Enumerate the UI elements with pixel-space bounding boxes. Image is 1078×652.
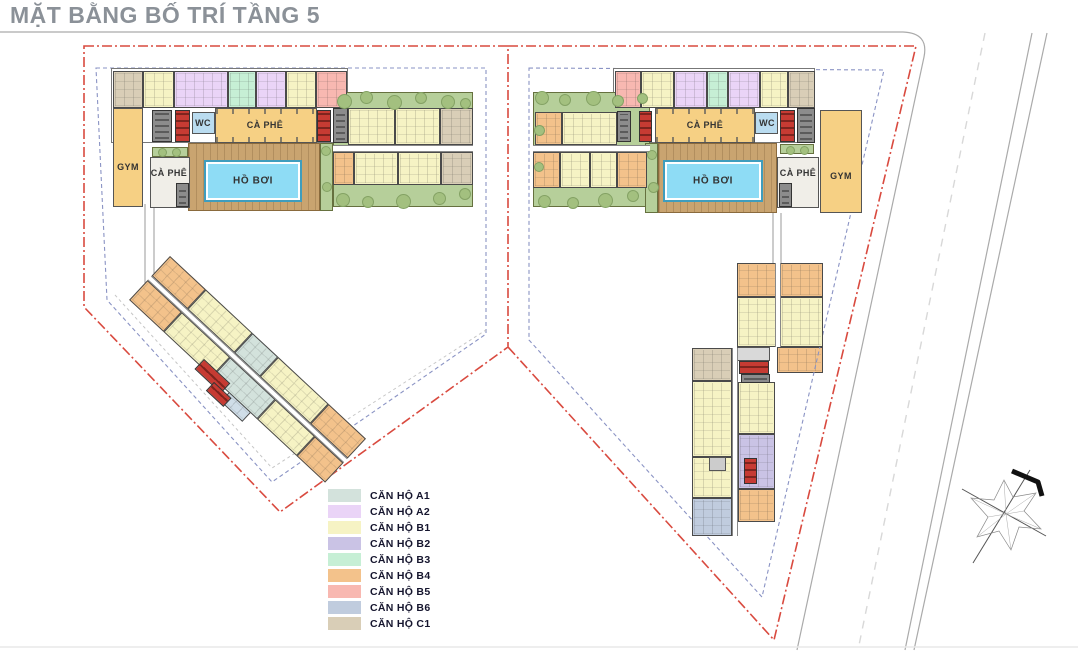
apartment-unit [780, 297, 823, 347]
tree-icon [387, 95, 402, 110]
legend-label: CĂN HỘ B3 [370, 554, 430, 566]
right-wing-lobby [737, 347, 770, 361]
elevator-core [333, 108, 348, 143]
tree-icon [336, 193, 350, 207]
legend-label: CĂN HỘ C1 [370, 618, 430, 630]
tree-icon [415, 92, 427, 104]
floorplan-canvas: MẶT BẰNG BỐ TRÍ TẦNG 5 [0, 0, 1078, 652]
apartment-unit [286, 71, 315, 108]
legend-swatch [328, 521, 361, 534]
apartment-unit [737, 263, 780, 297]
tree-icon [459, 188, 471, 200]
apartment-unit [590, 152, 617, 188]
road-centerline [858, 33, 985, 650]
legend-item: CĂN HỘ B4 [328, 569, 430, 582]
left-garden-bottom-row [333, 152, 473, 185]
apartment-unit [560, 152, 590, 188]
legend-label: CĂN HỘ B6 [370, 602, 430, 614]
legend: CĂN HỘ A1CĂN HỘ A2CĂN HỘ B1CĂN HỘ B2CĂN … [328, 489, 430, 633]
right-pool-label: HỒ BƠI [693, 176, 733, 187]
right-wc-label: WC [759, 118, 775, 128]
stair-core [744, 458, 757, 484]
legend-item: CĂN HỘ A1 [328, 489, 430, 502]
legend-swatch [328, 601, 361, 614]
tree-icon [559, 94, 571, 106]
left-cafe-inner-label: CÀ PHÊ [151, 168, 187, 178]
legend-item: CĂN HỘ A2 [328, 505, 430, 518]
tree-icon [158, 148, 167, 157]
legend-label: CĂN HỘ B1 [370, 522, 430, 534]
tree-icon [322, 182, 332, 192]
legend-swatch [328, 617, 361, 630]
tree-icon [360, 91, 373, 104]
tree-icon [172, 148, 181, 157]
right-garden-corridor [533, 145, 650, 152]
legend-label: CĂN HỘ B5 [370, 586, 430, 598]
tree-icon [433, 192, 446, 205]
tree-icon [535, 91, 549, 105]
right-gym-label: GYM [830, 171, 852, 181]
apartment-unit [441, 152, 473, 185]
tree-icon [534, 162, 544, 172]
elevator-core [741, 374, 770, 383]
elevator-core [617, 111, 631, 142]
legend-item: CĂN HỘ B3 [328, 553, 430, 566]
legend-swatch [328, 537, 361, 550]
elevator-core [797, 108, 815, 143]
right-garden-bottom-row [533, 152, 647, 188]
legend-item: CĂN HỘ B5 [328, 585, 430, 598]
apartment-unit [113, 71, 143, 108]
apartment-unit [333, 152, 354, 185]
stair-core [639, 111, 652, 142]
elevator-core [709, 457, 726, 471]
left-wc-label: WC [195, 118, 211, 128]
stair-core [780, 110, 795, 142]
tree-icon [598, 193, 613, 208]
apartment-unit [692, 348, 732, 381]
tree-icon [534, 125, 545, 136]
stair-core [317, 110, 331, 142]
left-top-unit-row [113, 71, 347, 108]
left-gym-label: GYM [117, 162, 139, 172]
elevator-core [152, 110, 172, 142]
apartment-unit [707, 71, 728, 108]
elevator-core [779, 183, 792, 207]
apartment-unit [143, 71, 173, 108]
apartment-unit [738, 382, 775, 434]
apartment-unit [737, 297, 780, 347]
apartment-unit [728, 71, 761, 108]
tree-icon [337, 94, 352, 109]
tree-icon [586, 91, 601, 106]
tree-icon [800, 146, 809, 155]
apartment-unit [617, 152, 647, 188]
apartment-unit [788, 71, 815, 108]
apartment-unit [354, 152, 398, 185]
apartment-unit [398, 152, 441, 185]
legend-swatch [328, 489, 361, 502]
apartment-unit [256, 71, 286, 108]
road-edge-2 [914, 33, 1047, 650]
tree-icon [321, 146, 331, 156]
tree-icon [538, 195, 551, 208]
right-cafe-inner-label: CÀ PHÊ [780, 168, 816, 178]
left-gym-room [113, 108, 143, 207]
right-wing-head-corridor [775, 263, 781, 347]
right-garden-top-row [535, 112, 617, 145]
right-cafe-main-label: CÀ PHÊ [687, 120, 723, 130]
legend-item: CĂN HỘ B6 [328, 601, 430, 614]
tree-icon [647, 150, 657, 160]
tree-icon [648, 182, 659, 193]
apartment-unit [738, 489, 775, 522]
legend-swatch [328, 569, 361, 582]
tree-icon [396, 194, 411, 209]
tree-icon [786, 146, 795, 155]
legend-label: CĂN HỘ B2 [370, 538, 430, 550]
right-wing-west-column [692, 348, 732, 536]
tree-icon [637, 93, 648, 104]
road-edge-1 [905, 33, 1032, 650]
right-wing-east-column [738, 382, 775, 522]
legend-item: CĂN HỘ B1 [328, 521, 430, 534]
legend-label: CĂN HỘ A2 [370, 506, 430, 518]
apartment-unit [562, 112, 617, 145]
apartment-unit [348, 108, 395, 145]
tree-icon [460, 98, 471, 109]
legend-swatch [328, 553, 361, 566]
apartment-unit [228, 71, 256, 108]
legend-label: CĂN HỘ A1 [370, 490, 430, 502]
legend-item: CĂN HỘ B2 [328, 537, 430, 550]
walkway-right [773, 213, 781, 264]
compass-icon [962, 470, 1046, 563]
legend-swatch [328, 505, 361, 518]
right-gym-room [820, 110, 862, 213]
legend-swatch [328, 585, 361, 598]
page-title: MẶT BẰNG BỐ TRÍ TẦNG 5 [10, 2, 320, 29]
apartment-unit [692, 381, 732, 458]
left-cafe-main-label: CÀ PHÊ [247, 120, 283, 130]
tree-icon [627, 190, 639, 202]
left-garden-corridor [333, 145, 473, 152]
apartment-unit [674, 71, 707, 108]
apartment-unit [760, 71, 788, 108]
elevator-core [176, 183, 189, 207]
stair-core [175, 110, 190, 142]
tree-icon [612, 95, 624, 107]
tree-icon [567, 197, 579, 209]
legend-item: CĂN HỘ C1 [328, 617, 430, 630]
tree-icon [362, 196, 374, 208]
stair-core [739, 361, 769, 374]
tree-icon [441, 95, 455, 109]
legend-label: CĂN HỘ B4 [370, 570, 430, 582]
apartment-unit [440, 108, 473, 145]
apartment-unit [692, 498, 732, 536]
right-wing-head [737, 263, 823, 347]
apartment-unit [395, 108, 440, 145]
apartment-unit [780, 263, 823, 297]
left-pool-label: HỒ BƠI [233, 176, 273, 187]
left-garden-top-row [348, 108, 473, 145]
apartment-unit [174, 71, 228, 108]
